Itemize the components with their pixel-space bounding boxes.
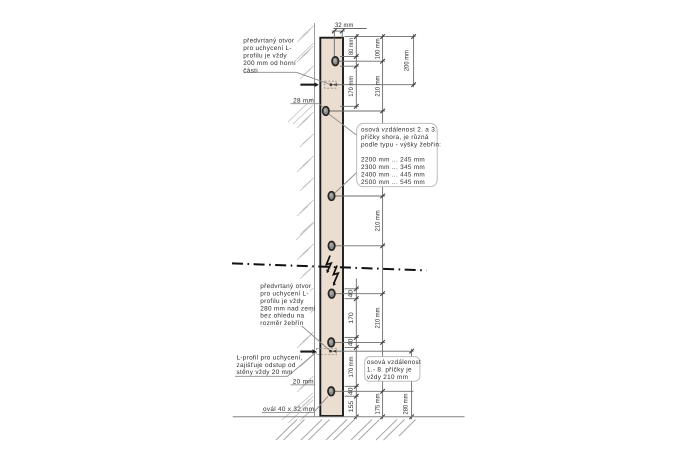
svg-text:profilu je vždy: profilu je vždy xyxy=(243,52,287,59)
svg-text:200 mm od horní: 200 mm od horní xyxy=(243,60,296,67)
svg-text:175 mm: 175 mm xyxy=(374,394,381,415)
svg-text:pro uchycení L-: pro uchycení L- xyxy=(260,290,309,297)
svg-text:zajišťuje odstup od: zajišťuje odstup od xyxy=(237,362,296,369)
svg-text:2400 mm ... 445 mm: 2400 mm ... 445 mm xyxy=(361,172,425,179)
svg-text:osová vzdálenost: osová vzdálenost xyxy=(367,359,421,366)
svg-text:280 mm: 280 mm xyxy=(403,394,410,415)
svg-text:28 mm: 28 mm xyxy=(293,97,314,104)
svg-text:podle typu - výšky žebřín:: podle typu - výšky žebřín: xyxy=(361,142,441,149)
svg-text:210 mm: 210 mm xyxy=(374,308,381,329)
svg-text:osová vzdálenost 2. a 3.: osová vzdálenost 2. a 3. xyxy=(361,127,437,134)
svg-text:bez ohledu na: bez ohledu na xyxy=(260,313,304,320)
svg-text:170 mm: 170 mm xyxy=(348,76,355,97)
svg-text:předvrtaný otvor: předvrtaný otvor xyxy=(260,283,312,290)
svg-text:předvrtaný otvor: předvrtaný otvor xyxy=(243,38,295,45)
svg-text:80 mm: 80 mm xyxy=(348,38,355,55)
svg-text:210 mm: 210 mm xyxy=(374,76,381,97)
svg-text:příčky shora, je různá: příčky shora, je různá xyxy=(361,133,429,141)
svg-text:2200 mm ... 245 mm: 2200 mm ... 245 mm xyxy=(361,157,425,164)
svg-text:170 mm: 170 mm xyxy=(348,357,355,378)
svg-text:vždy 210 mm: vždy 210 mm xyxy=(367,374,408,381)
svg-text:200 mm: 200 mm xyxy=(404,50,411,71)
svg-text:210 mm: 210 mm xyxy=(374,210,381,231)
svg-text:40: 40 xyxy=(348,338,355,346)
svg-text:1.- 8. příčky je: 1.- 8. příčky je xyxy=(367,367,412,374)
svg-text:ovál 40 x 32 mm: ovál 40 x 32 mm xyxy=(263,406,314,413)
svg-text:2300 mm ... 345 mm: 2300 mm ... 345 mm xyxy=(361,164,425,171)
svg-text:40: 40 xyxy=(348,289,355,297)
svg-text:100 mm: 100 mm xyxy=(374,38,381,59)
svg-text:170: 170 xyxy=(348,312,355,324)
svg-text:2500 mm ... 545 mm: 2500 mm ... 545 mm xyxy=(361,179,425,186)
svg-text:20 mm: 20 mm xyxy=(293,378,314,385)
svg-text:části: části xyxy=(243,67,258,74)
svg-text:pro uchycení L-: pro uchycení L- xyxy=(243,45,292,52)
svg-text:stěny vždy 20 mm: stěny vždy 20 mm xyxy=(237,369,293,376)
svg-text:rozměr žebřín: rozměr žebřín xyxy=(260,320,303,327)
svg-text:155: 155 xyxy=(348,400,355,412)
svg-text:280 mm nad zemi: 280 mm nad zemi xyxy=(260,305,315,312)
svg-text:profilu je vždy: profilu je vždy xyxy=(260,298,304,305)
svg-text:40: 40 xyxy=(348,387,355,395)
svg-text:32 mm: 32 mm xyxy=(335,22,354,29)
svg-text:L-profil pro uchycení,: L-profil pro uchycení, xyxy=(237,354,303,361)
